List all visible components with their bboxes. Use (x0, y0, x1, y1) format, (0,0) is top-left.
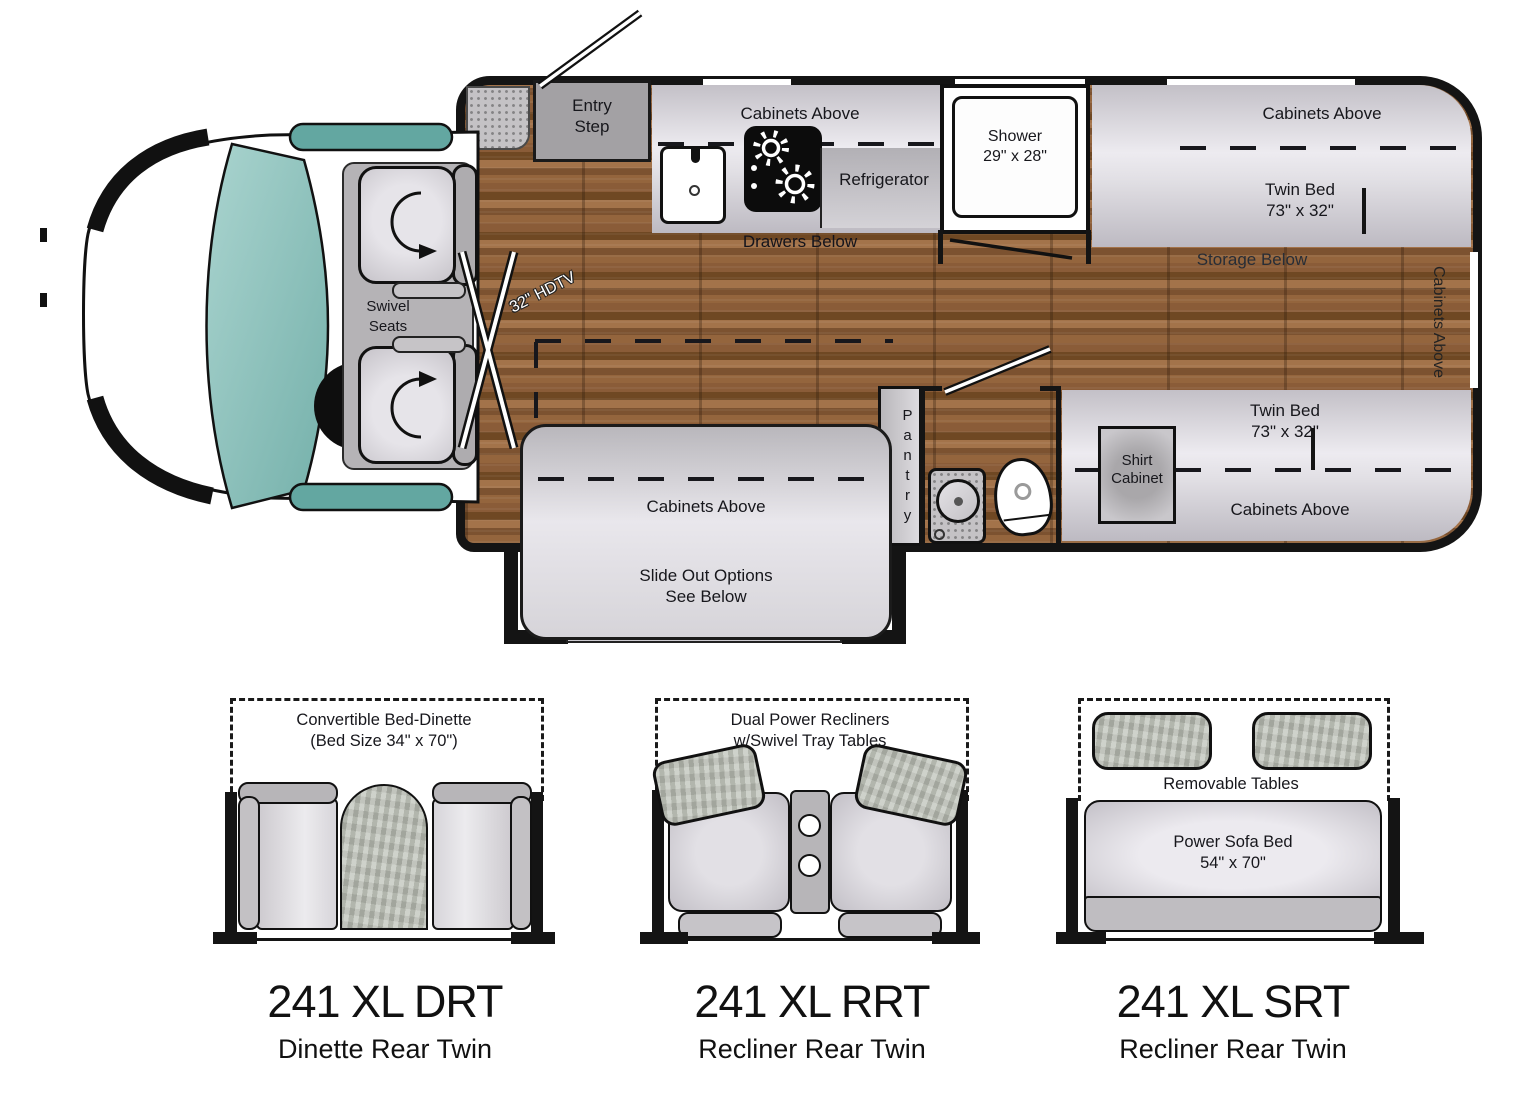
bed-bottom-cabinets-above-label: Cabinets Above (1210, 499, 1370, 520)
dinette-bench (256, 798, 338, 930)
storage-below-label: Storage Below (1162, 249, 1342, 270)
cupholder-icon (798, 854, 821, 877)
swivel-seats-label: Swivel Seats (332, 297, 444, 336)
bed-top-label: Twin Bed 73" x 32" (1220, 179, 1380, 222)
power-sofa-bed-label: Power Sofa Bed 54" x 70" (1103, 832, 1363, 873)
bathroom-wall (920, 386, 925, 546)
toilet-seat-line (1004, 514, 1050, 522)
recliner-footrest (838, 912, 942, 938)
variant-srt-name: Recliner Rear Twin (1083, 1034, 1383, 1065)
variant-wall (225, 792, 237, 940)
variant-wall (1066, 798, 1078, 940)
variant-base-foot (1374, 932, 1424, 944)
mirror-bar (290, 124, 452, 150)
slideout-cabinets-above-label: Cabinets Above (616, 496, 796, 517)
variant-rrt-note: Dual Power Recliners w/Swivel Tray Table… (680, 710, 940, 751)
bathroom-wall-stub (922, 386, 942, 391)
swivel-arrow-icon (361, 349, 453, 461)
variant-drt-note: Convertible Bed-Dinette (Bed Size 34" x … (254, 710, 514, 751)
variant-base-line (684, 938, 936, 941)
bed-divider-tick (1311, 428, 1315, 470)
slideout-travel-dash-v (534, 342, 538, 426)
bed-top-cabinets-above-label: Cabinets Above (1242, 103, 1402, 124)
entry-step-label: Entry Step (541, 95, 643, 138)
shower-label: Shower 29" x 28" (950, 127, 1080, 167)
rear-cabinets-label: Cabinets Above (1414, 246, 1448, 398)
variant-base-foot (1056, 932, 1106, 944)
bath-sink-drain-icon (954, 497, 963, 506)
variant-base-foot (932, 932, 980, 944)
side-marker (40, 228, 47, 242)
removable-table (1092, 712, 1212, 770)
variant-wall (531, 792, 543, 940)
kitchen-sink (660, 146, 726, 224)
sofa-base-band (1084, 896, 1382, 932)
slideout-options-label: Slide Out Options See Below (586, 565, 826, 608)
drawers-below-label: Drawers Below (710, 231, 890, 252)
swivel-seat (358, 166, 456, 284)
variant-srt-model: 241 XL SRT (1083, 976, 1383, 1028)
faucet-icon (691, 147, 700, 163)
stove-burners-icon (744, 126, 822, 212)
shirt-cabinet-bottom-label: Shirt Cabinet (1098, 452, 1176, 488)
bath-sink-counter (928, 468, 986, 544)
removable-table (1252, 712, 1372, 770)
variant-drt-model: 241 XL DRT (235, 976, 535, 1028)
side-marker (40, 293, 47, 307)
mirror-bar (290, 484, 452, 510)
wall-stub (1086, 230, 1091, 264)
slideout-cabinet-dash (538, 477, 878, 481)
swivel-seat (358, 346, 456, 464)
variant-drt-name: Dinette Rear Twin (235, 1034, 535, 1065)
wall-stub (938, 230, 943, 264)
variant-rrt-model: 241 XL RRT (662, 976, 962, 1028)
refrigerator-label: Refrigerator (820, 169, 948, 190)
toilet-bowl-icon (1013, 482, 1032, 501)
bathroom-wall (1056, 386, 1061, 546)
removable-tables-label: Removable Tables (1121, 774, 1341, 795)
cupholder-icon (798, 814, 821, 837)
recliner-footrest (678, 912, 782, 938)
slideout-box (520, 424, 892, 640)
variant-wall (1388, 798, 1400, 940)
rear-window-slit (1470, 252, 1478, 388)
sink-drain-icon (689, 185, 700, 196)
windshield (207, 144, 329, 508)
variant-base-foot (640, 932, 688, 944)
swivel-arrow-icon (361, 169, 453, 281)
stove (744, 126, 822, 212)
bath-fixture-icon (934, 529, 945, 540)
bed-divider-tick (1362, 188, 1366, 234)
slideout-travel-dash-h (535, 339, 893, 343)
bed-bottom-label: Twin Bed 73" x 32" (1205, 400, 1365, 443)
kitchen-cabinets-above-label: Cabinets Above (700, 103, 900, 124)
dinette-backrest (510, 796, 532, 930)
floorplan-page: Cabinets Above Refrigerator Drawers Belo… (0, 0, 1536, 1097)
variant-base-line (252, 938, 518, 941)
variant-base-foot (213, 932, 257, 944)
variant-rrt-name: Recliner Rear Twin (662, 1034, 962, 1065)
bed-top-dash (1180, 146, 1464, 150)
dinette-bench (432, 798, 514, 930)
recliner-console (790, 790, 830, 914)
dinette-table (340, 784, 428, 930)
dinette-backrest (238, 796, 260, 930)
variant-base-line (1100, 938, 1380, 941)
seat-tab (392, 336, 466, 353)
bathroom-wall-stub (1040, 386, 1058, 391)
